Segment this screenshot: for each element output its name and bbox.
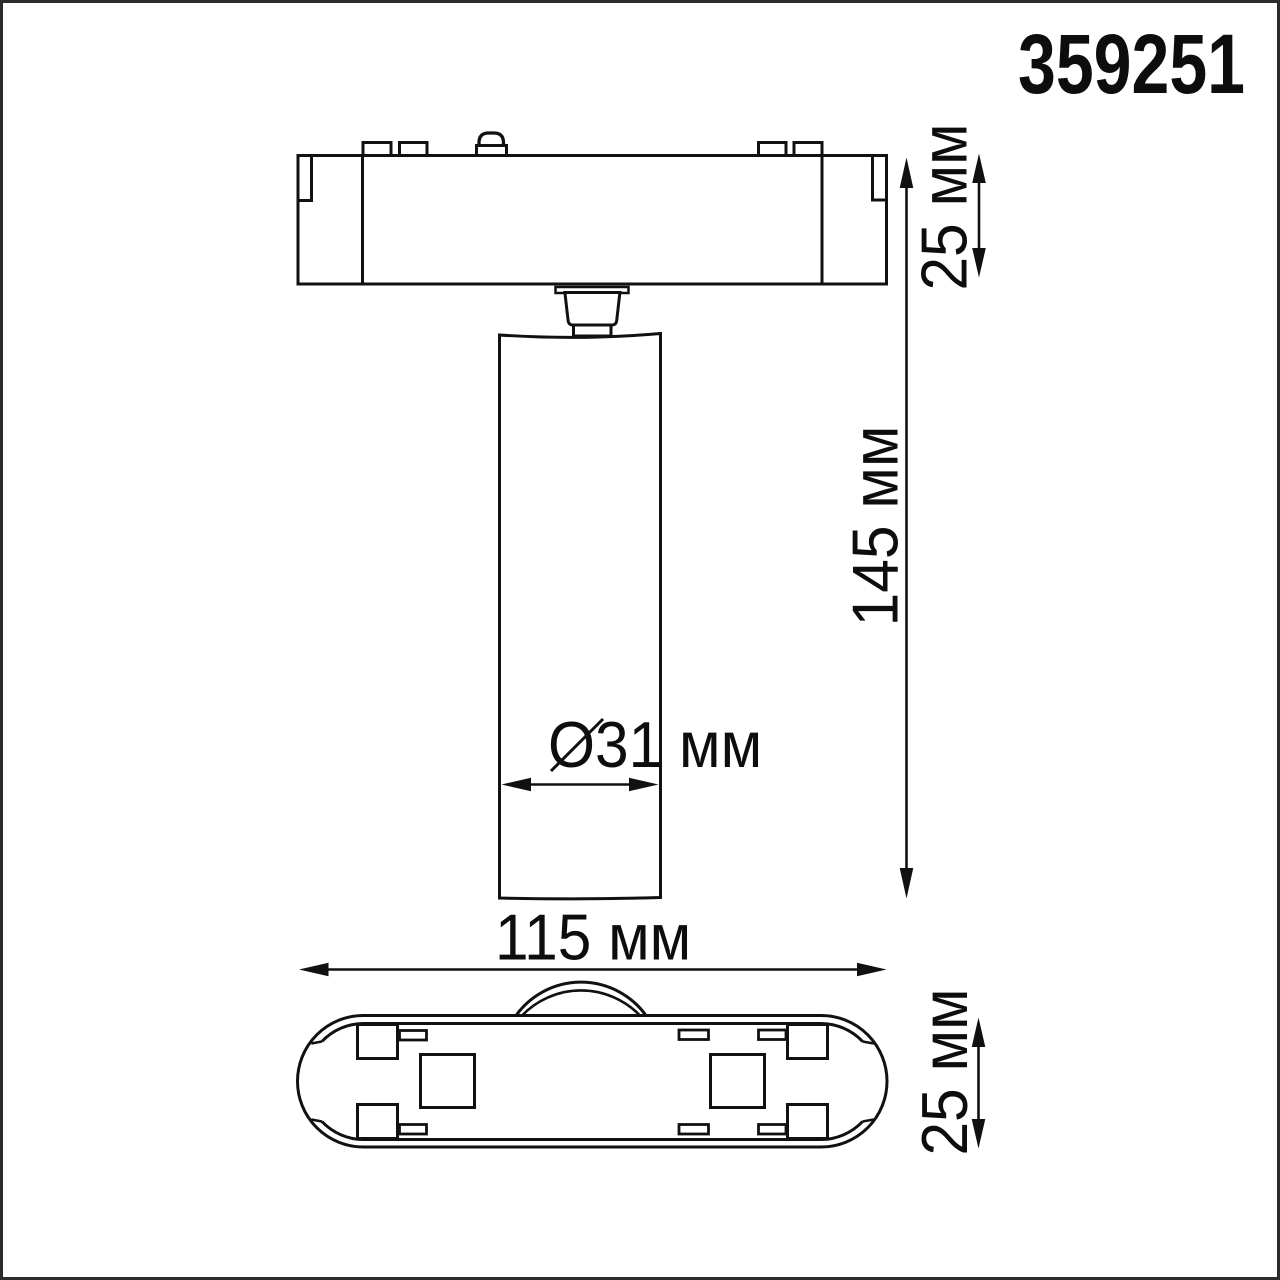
svg-text:359251: 359251 <box>1018 18 1245 111</box>
svg-text:25 мм: 25 мм <box>909 123 981 290</box>
svg-text:145 мм: 145 мм <box>840 426 912 627</box>
svg-text:115 мм: 115 мм <box>495 902 691 974</box>
svg-text:25 мм: 25 мм <box>909 988 981 1155</box>
svg-text:O31 мм: O31 мм <box>548 709 762 781</box>
